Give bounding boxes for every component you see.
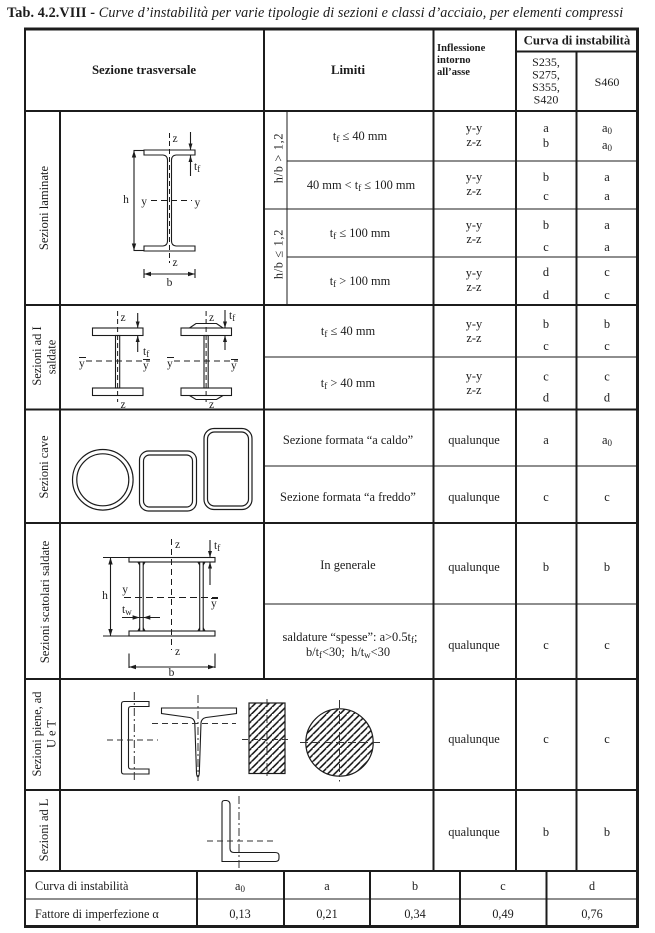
svg-text:a: a bbox=[543, 433, 549, 447]
svg-text:h/b ≤ 1,2: h/b ≤ 1,2 bbox=[272, 229, 286, 279]
svg-text:c: c bbox=[543, 240, 549, 254]
svg-text:z: z bbox=[173, 257, 178, 269]
svg-text:S460: S460 bbox=[595, 75, 620, 89]
svg-text:d: d bbox=[589, 879, 595, 893]
svg-text:z: z bbox=[209, 399, 214, 411]
svg-text:Tab. 4.2.VIII - Curve d’instab: Tab. 4.2.VIII - Curve d’instabilità per … bbox=[7, 5, 623, 21]
svg-text:b: b bbox=[604, 317, 610, 331]
svg-text:y-y: y-y bbox=[466, 121, 483, 135]
svg-text:S420: S420 bbox=[534, 93, 559, 107]
svg-text:a: a bbox=[604, 170, 610, 184]
svg-text:h/b > 1,2: h/b > 1,2 bbox=[272, 133, 286, 183]
svg-text:U e T: U e T bbox=[45, 720, 59, 748]
svg-text:saldate: saldate bbox=[45, 339, 59, 374]
svg-text:c: c bbox=[604, 370, 610, 384]
svg-text:z: z bbox=[209, 312, 214, 324]
svg-text:b: b bbox=[543, 136, 549, 150]
svg-text:a: a bbox=[543, 121, 549, 135]
svg-text:z: z bbox=[121, 399, 126, 411]
svg-text:Sezioni piene, ad: Sezioni piene, ad bbox=[30, 691, 44, 777]
svg-text:y-y: y-y bbox=[466, 218, 483, 232]
svg-text:0,13: 0,13 bbox=[229, 907, 250, 921]
svg-text:b: b bbox=[543, 560, 549, 574]
svg-text:a: a bbox=[324, 879, 330, 893]
svg-text:tf ≤ 40 mm: tf ≤ 40 mm bbox=[321, 324, 376, 339]
svg-text:tf ≤ 100 mm: tf ≤ 100 mm bbox=[330, 226, 391, 241]
svg-text:z-z: z-z bbox=[466, 331, 482, 345]
svg-text:qualunque: qualunque bbox=[448, 490, 500, 504]
svg-text:0,21: 0,21 bbox=[316, 907, 337, 921]
svg-text:qualunque: qualunque bbox=[448, 560, 500, 574]
svg-text:Sezione formata “a caldo”: Sezione formata “a caldo” bbox=[283, 433, 413, 447]
svg-text:z-z: z-z bbox=[466, 232, 482, 246]
svg-text:0,34: 0,34 bbox=[404, 907, 425, 921]
svg-text:tf ≤ 40 mm: tf ≤ 40 mm bbox=[333, 129, 388, 144]
svg-text:Sezioni laminate: Sezioni laminate bbox=[37, 165, 51, 250]
svg-text:y: y bbox=[167, 358, 173, 370]
svg-text:a: a bbox=[604, 218, 610, 232]
svg-text:In generale: In generale bbox=[320, 558, 376, 572]
svg-text:y-y: y-y bbox=[466, 170, 483, 184]
svg-text:d: d bbox=[604, 391, 611, 405]
svg-text:c: c bbox=[543, 370, 549, 384]
svg-text:z: z bbox=[175, 539, 180, 551]
svg-text:d: d bbox=[543, 391, 550, 405]
svg-text:b: b bbox=[169, 667, 175, 679]
svg-text:y: y bbox=[195, 197, 201, 209]
svg-text:b/tf<30; h/tw<30: b/tf<30; h/tw<30 bbox=[306, 645, 390, 660]
svg-text:z-z: z-z bbox=[466, 383, 482, 397]
svg-text:y: y bbox=[211, 598, 217, 610]
svg-text:z: z bbox=[121, 312, 126, 324]
svg-text:z-z: z-z bbox=[466, 184, 482, 198]
svg-text:y: y bbox=[141, 196, 147, 208]
svg-text:all’asse: all’asse bbox=[437, 67, 470, 78]
svg-text:b: b bbox=[543, 218, 549, 232]
svg-text:c: c bbox=[604, 288, 610, 302]
svg-text:b: b bbox=[604, 825, 610, 839]
svg-text:Limiti: Limiti bbox=[331, 63, 366, 77]
svg-text:z-z: z-z bbox=[466, 280, 482, 294]
svg-text:y-y: y-y bbox=[466, 317, 483, 331]
svg-text:c: c bbox=[543, 490, 549, 504]
svg-text:h: h bbox=[123, 194, 129, 206]
svg-text:b: b bbox=[543, 317, 549, 331]
svg-text:Sezione trasversale: Sezione trasversale bbox=[92, 63, 196, 77]
svg-text:Sezioni ad L: Sezioni ad L bbox=[37, 799, 51, 862]
svg-text:c: c bbox=[604, 638, 610, 652]
svg-text:Sezioni cave: Sezioni cave bbox=[37, 435, 51, 498]
svg-text:c: c bbox=[500, 879, 506, 893]
svg-text:Sezioni ad I: Sezioni ad I bbox=[30, 326, 44, 385]
svg-text:h: h bbox=[102, 590, 108, 602]
svg-text:c: c bbox=[543, 189, 549, 203]
svg-text:a: a bbox=[604, 189, 610, 203]
svg-text:z: z bbox=[173, 133, 178, 145]
svg-text:b: b bbox=[412, 879, 418, 893]
svg-text:qualunque: qualunque bbox=[448, 732, 500, 746]
svg-text:y: y bbox=[143, 360, 149, 372]
svg-text:c: c bbox=[604, 490, 610, 504]
svg-text:qualunque: qualunque bbox=[448, 433, 500, 447]
svg-text:qualunque: qualunque bbox=[448, 638, 500, 652]
svg-text:y: y bbox=[122, 584, 128, 596]
svg-text:b: b bbox=[543, 825, 549, 839]
svg-text:y: y bbox=[231, 360, 237, 372]
svg-text:b: b bbox=[543, 170, 549, 184]
svg-text:c: c bbox=[604, 339, 610, 353]
svg-text:c: c bbox=[604, 265, 610, 279]
svg-text:y-y: y-y bbox=[466, 266, 483, 280]
svg-text:saldature “spesse”: a>0.5tf;: saldature “spesse”: a>0.5tf; bbox=[283, 630, 418, 645]
svg-text:c: c bbox=[543, 732, 549, 746]
svg-text:qualunque: qualunque bbox=[448, 825, 500, 839]
svg-text:Sezioni scatolari saldate: Sezioni scatolari saldate bbox=[38, 540, 52, 663]
svg-text:0,49: 0,49 bbox=[492, 907, 513, 921]
svg-text:Curva di instabilità: Curva di instabilità bbox=[524, 34, 631, 48]
svg-text:z-z: z-z bbox=[466, 135, 482, 149]
svg-text:d: d bbox=[543, 288, 550, 302]
svg-text:y-y: y-y bbox=[466, 369, 483, 383]
svg-text:b: b bbox=[604, 560, 610, 574]
svg-text:z: z bbox=[175, 646, 180, 658]
svg-text:Sezione formata “a freddo”: Sezione formata “a freddo” bbox=[280, 490, 416, 504]
svg-text:intorno: intorno bbox=[437, 55, 471, 66]
svg-text:d: d bbox=[543, 265, 550, 279]
svg-text:c: c bbox=[543, 638, 549, 652]
svg-text:Inflessione: Inflessione bbox=[437, 43, 486, 54]
svg-text:tf > 100 mm: tf > 100 mm bbox=[330, 274, 391, 289]
svg-text:c: c bbox=[543, 339, 549, 353]
svg-text:a: a bbox=[604, 240, 610, 254]
svg-text:40 mm < tf ≤ 100 mm: 40 mm < tf ≤ 100 mm bbox=[307, 178, 416, 193]
svg-text:c: c bbox=[604, 732, 610, 746]
svg-text:0,76: 0,76 bbox=[581, 907, 602, 921]
svg-text:b: b bbox=[167, 277, 173, 289]
svg-text:Fattore di imperfezione α: Fattore di imperfezione α bbox=[35, 907, 159, 921]
svg-text:tf > 40 mm: tf > 40 mm bbox=[321, 376, 376, 391]
svg-text:Curva di instabilità: Curva di instabilità bbox=[35, 879, 129, 893]
svg-text:y: y bbox=[79, 358, 85, 370]
